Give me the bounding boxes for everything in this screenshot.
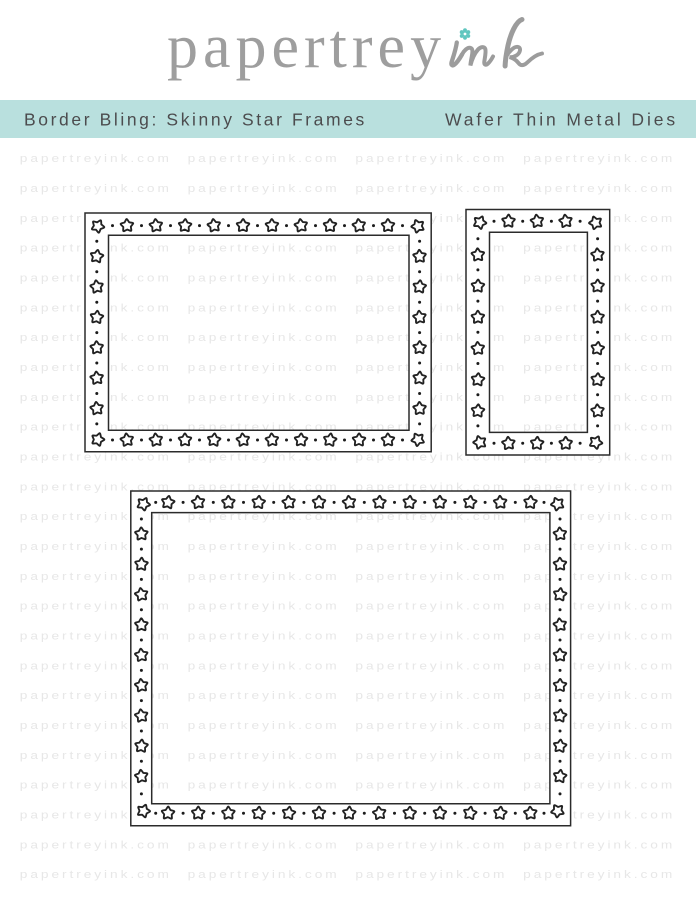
svg-text:papertreyink.com: papertreyink.com: [188, 452, 340, 464]
svg-text:papertreyink.com: papertreyink.com: [523, 780, 675, 792]
svg-text:papertreyink.com: papertreyink.com: [523, 720, 675, 732]
svg-text:papertreyink.com: papertreyink.com: [20, 839, 172, 851]
svg-text:papertreyink.com: papertreyink.com: [188, 720, 340, 732]
svg-text:papertreyink.com: papertreyink.com: [188, 273, 340, 285]
svg-text:papertreyink.com: papertreyink.com: [523, 153, 675, 165]
svg-text:papertreyink.com: papertreyink.com: [355, 690, 507, 702]
svg-text:papertreyink.com: papertreyink.com: [355, 869, 507, 881]
svg-text:papertreyink.com: papertreyink.com: [188, 869, 340, 881]
svg-text:papertreyink.com: papertreyink.com: [188, 601, 340, 613]
svg-text:papertreyink.com: papertreyink.com: [188, 631, 340, 643]
svg-text:papertreyink.com: papertreyink.com: [523, 690, 675, 702]
svg-text:papertreyink.com: papertreyink.com: [355, 153, 507, 165]
svg-text:papertreyink.com: papertreyink.com: [355, 571, 507, 583]
svg-text:papertreyink.com: papertreyink.com: [523, 601, 675, 613]
svg-text:papertreyink.com: papertreyink.com: [523, 541, 675, 553]
svg-text:papertreyink.com: papertreyink.com: [20, 183, 172, 195]
svg-text:papertreyink.com: papertreyink.com: [188, 780, 340, 792]
svg-text:papertreyink.com: papertreyink.com: [188, 690, 340, 702]
svg-text:papertreyink.com: papertreyink.com: [188, 660, 340, 672]
svg-text:papertreyink.com: papertreyink.com: [355, 183, 507, 195]
svg-text:papertreyink.com: papertreyink.com: [20, 153, 172, 165]
svg-text:papertreyink.com: papertreyink.com: [355, 780, 507, 792]
svg-text:papertreyink.com: papertreyink.com: [188, 392, 340, 404]
svg-text:papertreyink.com: papertreyink.com: [523, 631, 675, 643]
svg-text:papertreyink.com: papertreyink.com: [188, 302, 340, 314]
svg-text:papertreyink.com: papertreyink.com: [355, 720, 507, 732]
svg-text:papertreyink.com: papertreyink.com: [188, 243, 340, 255]
svg-text:papertreyink.com: papertreyink.com: [20, 452, 172, 464]
svg-text:papertreyink.com: papertreyink.com: [355, 839, 507, 851]
svg-text:papertreyink.com: papertreyink.com: [355, 601, 507, 613]
svg-text:papertreyink.com: papertreyink.com: [355, 660, 507, 672]
svg-text:papertreyink.com: papertreyink.com: [523, 839, 675, 851]
svg-text:papertreyink.com: papertreyink.com: [20, 869, 172, 881]
svg-text:papertreyink.com: papertreyink.com: [188, 750, 340, 762]
svg-text:papertreyink.com: papertreyink.com: [188, 362, 340, 374]
svg-text:papertreyink.com: papertreyink.com: [355, 631, 507, 643]
svg-text:papertreyink.com: papertreyink.com: [188, 183, 340, 195]
svg-text:papertreyink.com: papertreyink.com: [188, 571, 340, 583]
svg-text:papertreyink.com: papertreyink.com: [188, 153, 340, 165]
svg-text:papertreyink.com: papertreyink.com: [188, 332, 340, 344]
svg-text:papertreyink.com: papertreyink.com: [523, 571, 675, 583]
svg-text:papertreyink.com: papertreyink.com: [523, 750, 675, 762]
svg-text:papertreyink.com: papertreyink.com: [523, 660, 675, 672]
svg-text:papertreyink.com: papertreyink.com: [523, 183, 675, 195]
svg-text:papertreyink.com: papertreyink.com: [355, 750, 507, 762]
svg-text:papertreyink.com: papertreyink.com: [355, 541, 507, 553]
svg-text:papertreyink.com: papertreyink.com: [188, 839, 340, 851]
svg-text:papertreyink.com: papertreyink.com: [188, 541, 340, 553]
svg-text:papertreyink.com: papertreyink.com: [523, 869, 675, 881]
